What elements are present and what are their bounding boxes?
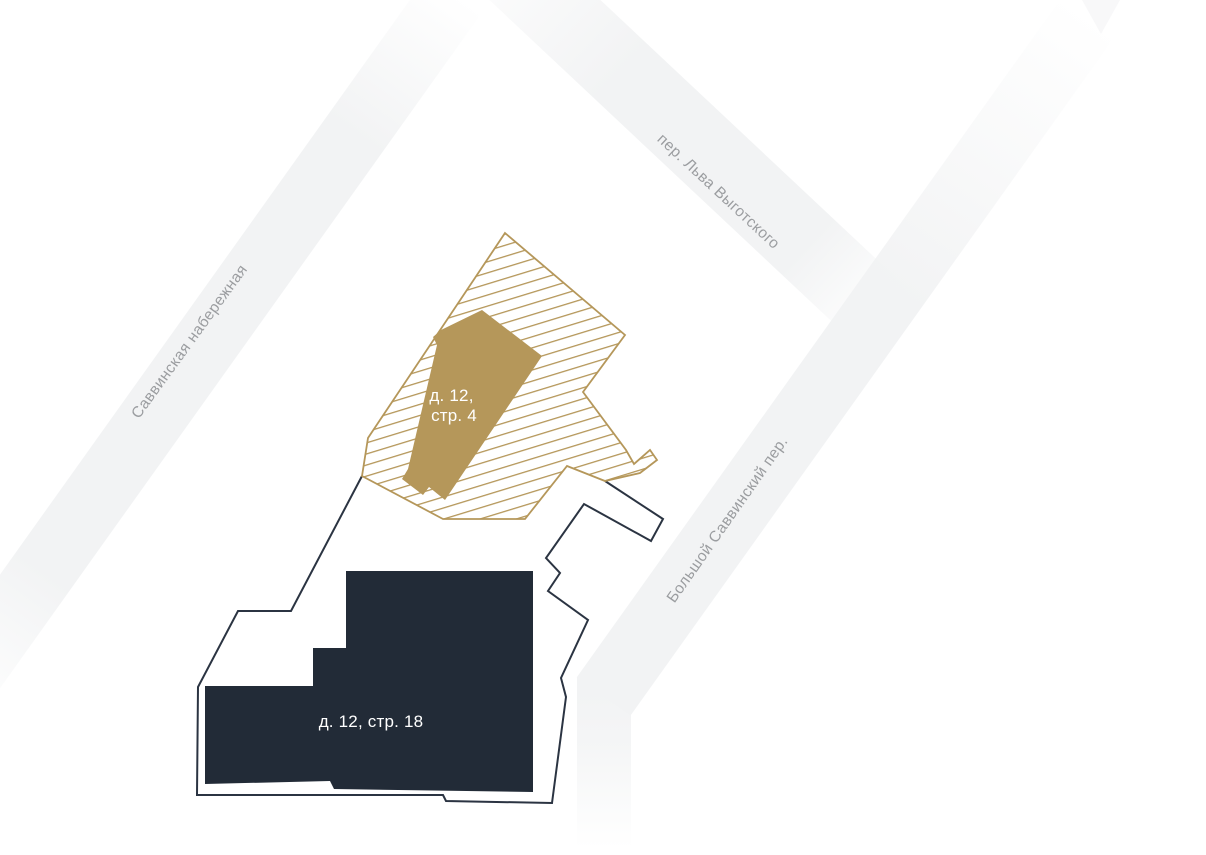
building-d12-s18-footprint[interactable] bbox=[205, 571, 533, 792]
building-d12-s4-label: д. 12, стр. 4 bbox=[429, 386, 478, 425]
building-d12-s18[interactable]: д. 12, стр. 18 bbox=[205, 571, 533, 792]
street-label-bolshoy-savvinsky: Большой Саввинский пер. bbox=[664, 434, 792, 606]
map-canvas: Саввинская набережная пер. Льва Выготско… bbox=[0, 0, 1206, 855]
building-d12-s18-label: д. 12, стр. 18 bbox=[319, 712, 424, 731]
site-plan-map: Саввинская набережная пер. Льва Выготско… bbox=[0, 0, 1206, 855]
